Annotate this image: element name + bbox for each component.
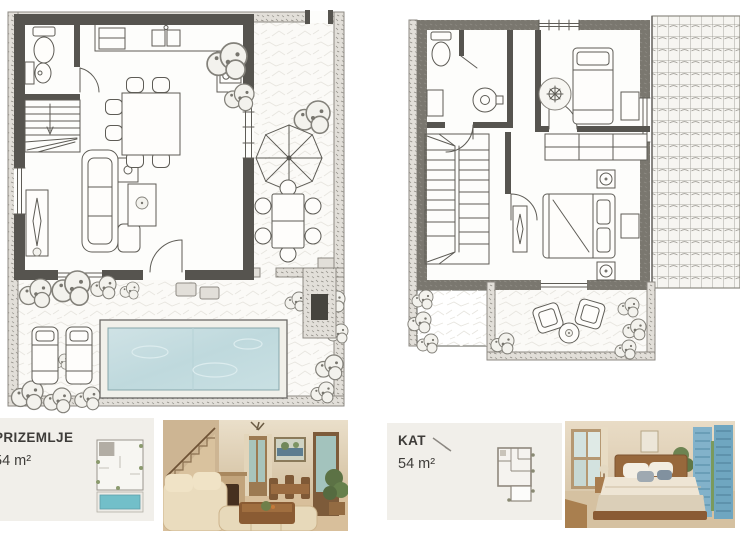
balcony-door — [541, 280, 587, 290]
console-table — [513, 206, 527, 252]
upper-floor-thumbnail — [494, 445, 538, 503]
side-window — [14, 168, 25, 214]
dining-table — [122, 93, 180, 155]
bathroom-cabinet — [427, 90, 443, 116]
double-bed — [543, 194, 615, 258]
toilet — [33, 27, 55, 63]
swimming-pool — [100, 320, 287, 398]
shelf — [621, 214, 639, 238]
floor-label: PRIZEMLJE — [0, 430, 73, 445]
wardrobe — [545, 134, 647, 160]
ground-floor-card: PRIZEMLJE 54 m² — [0, 418, 154, 521]
coffee-table — [128, 184, 156, 226]
living-room-photo — [163, 420, 348, 531]
floor-area: 54 m² — [0, 453, 73, 469]
round-rug — [539, 78, 571, 110]
roof-tiles — [652, 16, 740, 288]
ground-floor-thumbnail — [94, 438, 148, 516]
wall-painting — [275, 438, 305, 461]
upper-floor-plan — [393, 0, 740, 415]
desk — [621, 92, 639, 120]
single-bed — [573, 48, 613, 124]
thumbnail-pool — [100, 495, 140, 509]
coffee-table-photo — [239, 501, 295, 524]
floor-plan-sheet: PRIZEMLJE 54 m² — [0, 0, 740, 550]
balcony — [487, 282, 655, 360]
floor-label: KAT — [398, 433, 435, 448]
wall-art — [641, 431, 658, 452]
bedroom-photo — [565, 421, 735, 528]
upper-floor-card: KAT 54 m² — [387, 423, 562, 520]
floor-area: 54 m² — [398, 456, 435, 472]
dining-furniture — [269, 475, 310, 500]
bidet — [25, 62, 51, 84]
garden-gate — [309, 11, 329, 23]
top-window — [539, 20, 579, 30]
barbecue — [303, 258, 336, 338]
balcony-table — [559, 323, 579, 343]
pen-mark — [431, 436, 453, 454]
ottoman — [118, 224, 140, 252]
tv-console — [26, 190, 48, 256]
toilet — [431, 32, 451, 66]
ground-floor-plan — [0, 0, 355, 415]
